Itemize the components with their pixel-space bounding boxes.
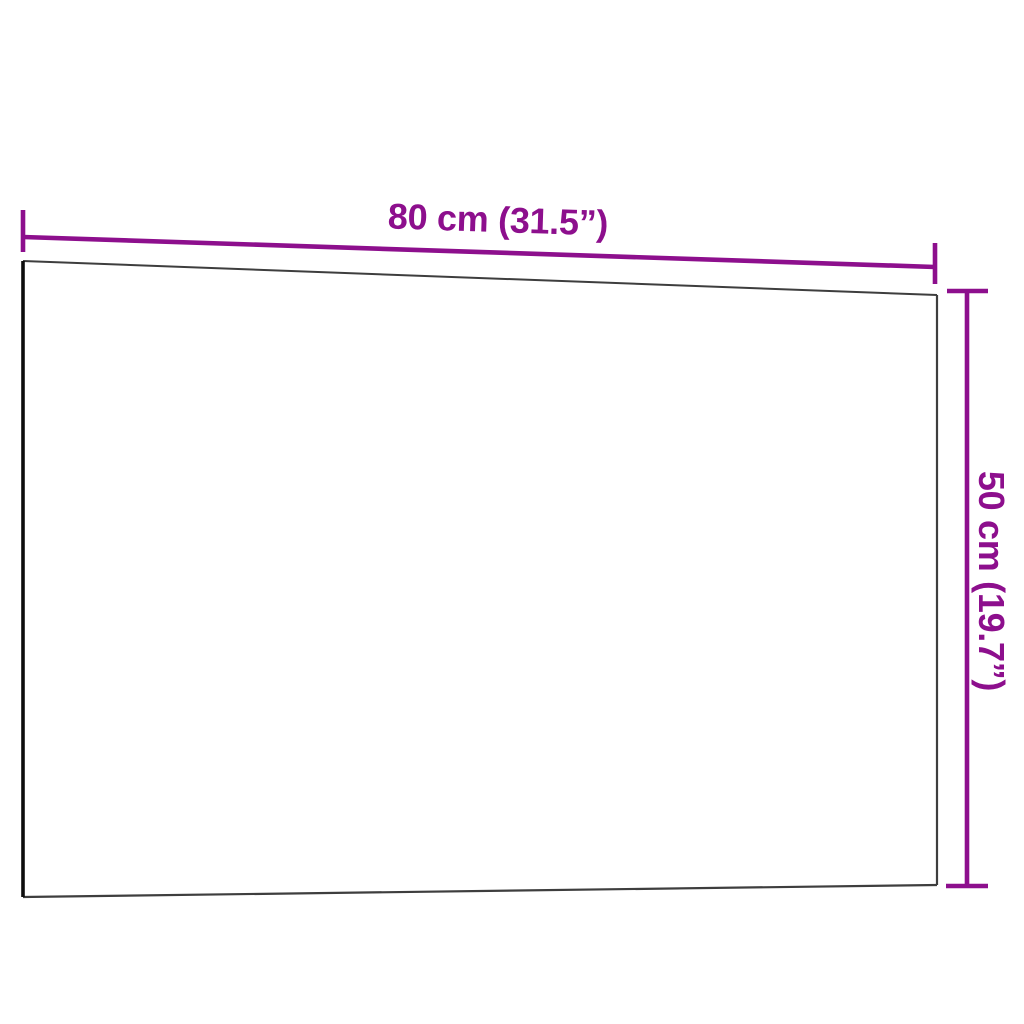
dimension-diagram bbox=[0, 0, 1024, 1024]
width-dimension-label: 80 cm (31.5”) bbox=[387, 195, 609, 244]
height-dimension-label: 50 cm (19.7”) bbox=[970, 471, 1012, 691]
product-dimension-image: 80 cm (31.5”) 50 cm (19.7”) bbox=[0, 0, 1024, 1024]
board-panel bbox=[23, 261, 937, 897]
width-dimension-shaft bbox=[23, 237, 935, 267]
